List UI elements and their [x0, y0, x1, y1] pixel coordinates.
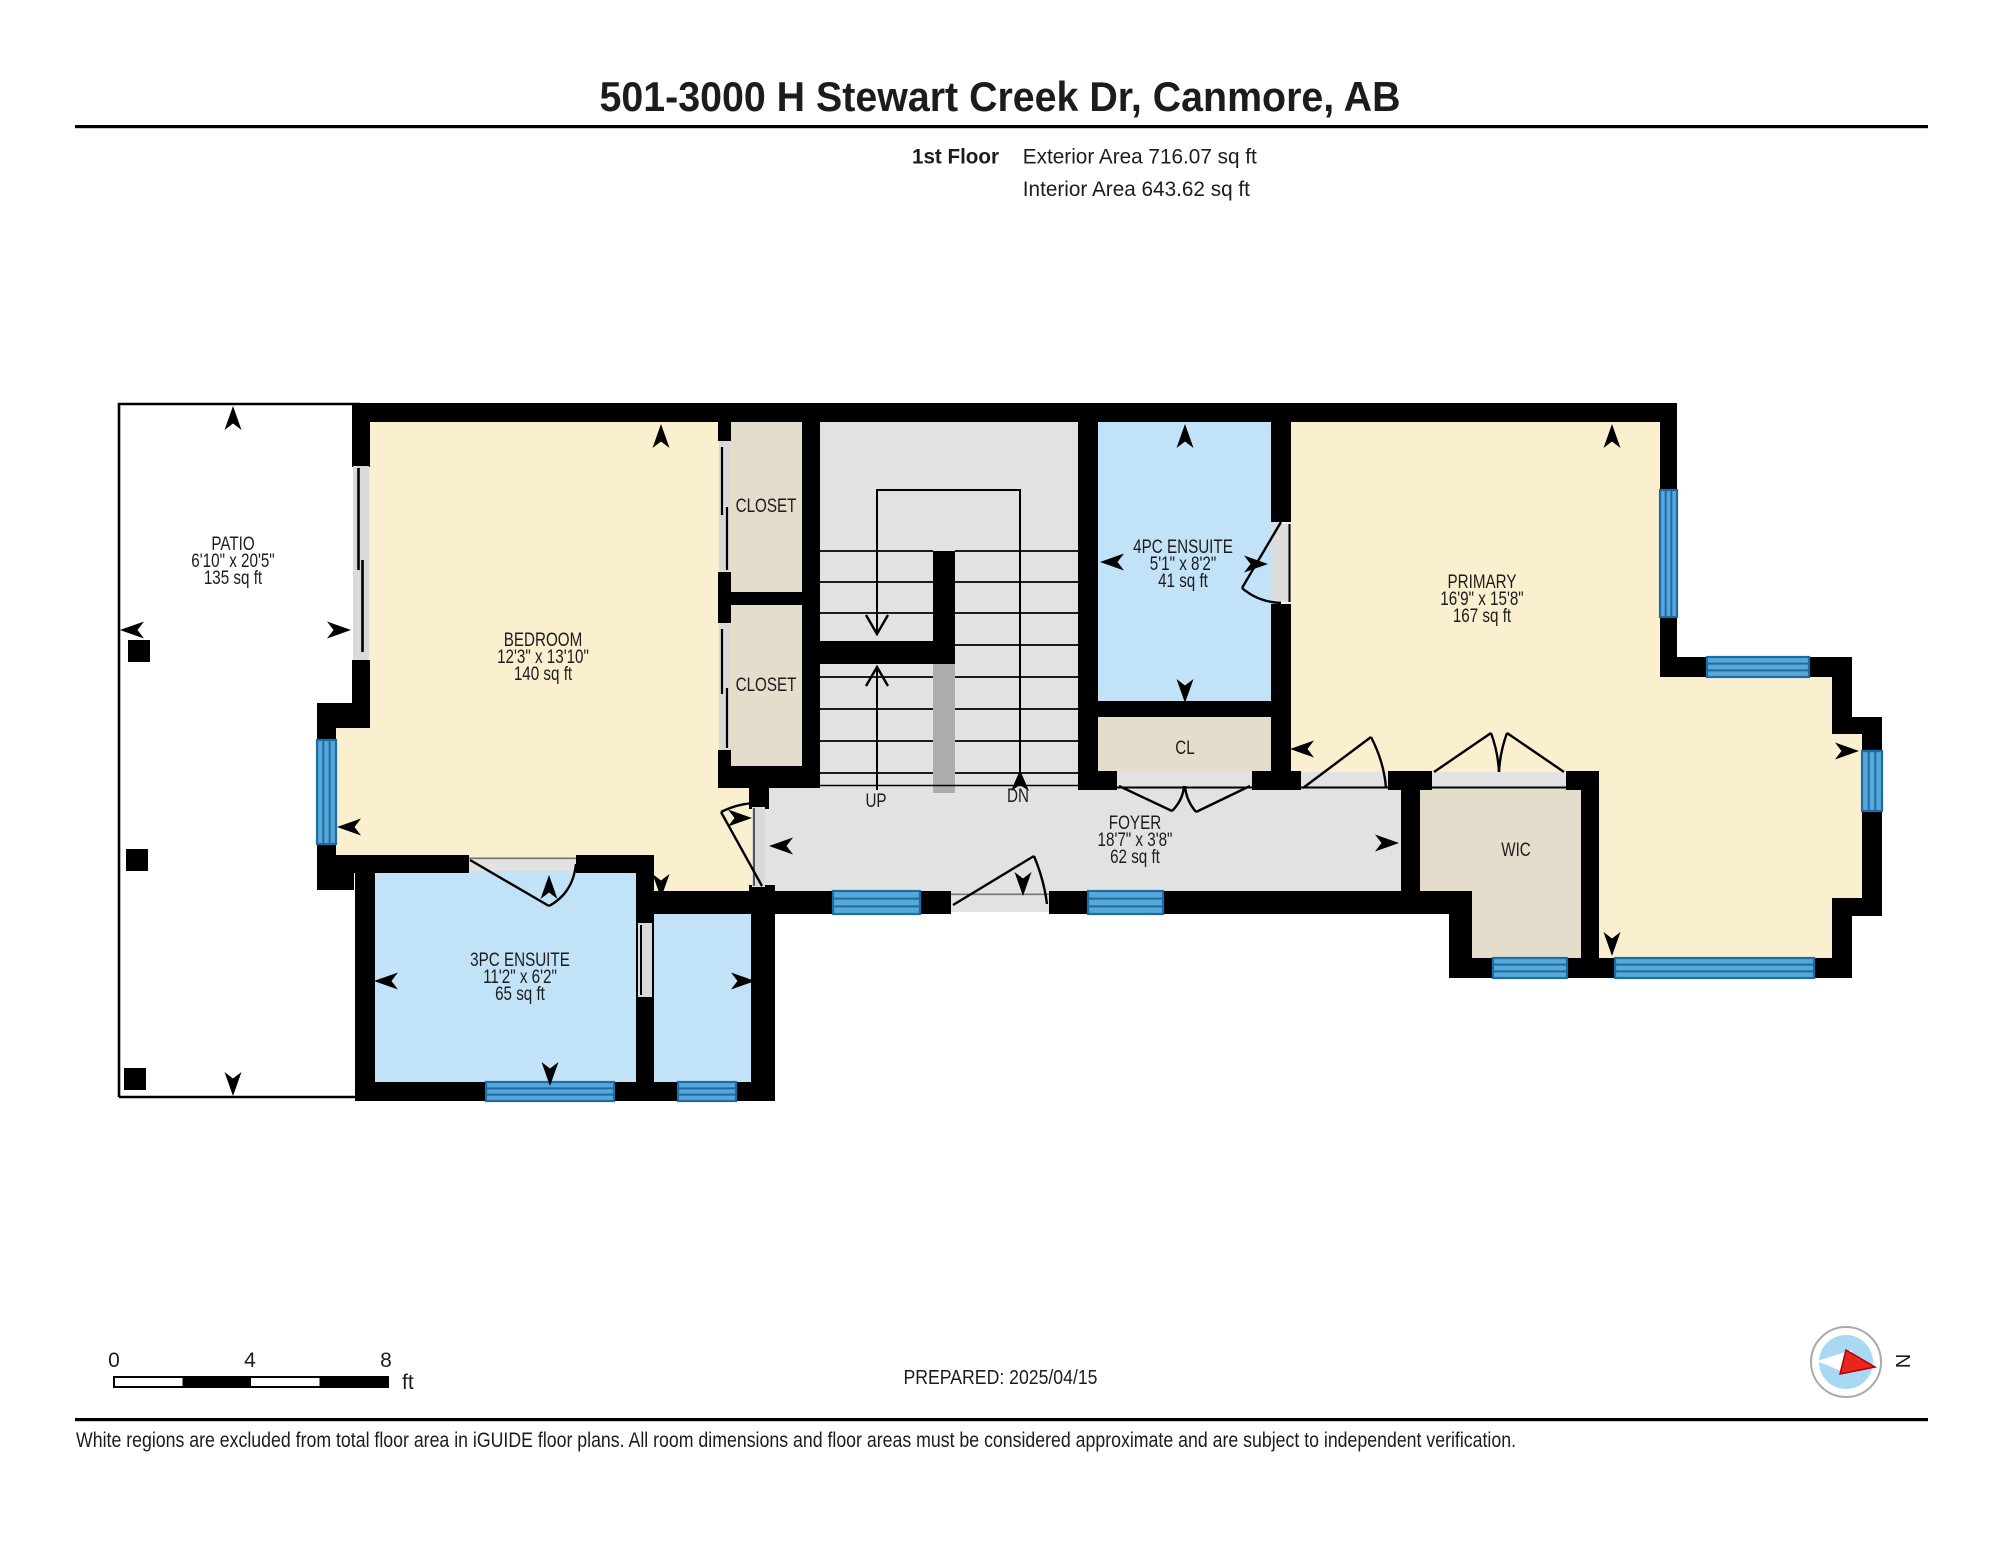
- svg-text:CLOSET: CLOSET: [736, 675, 797, 696]
- svg-text:CLOSET: CLOSET: [736, 496, 797, 517]
- svg-text:62 sq ft: 62 sq ft: [1110, 847, 1160, 868]
- svg-text:White regions are excluded fro: White regions are excluded from total fl…: [76, 1429, 1516, 1452]
- svg-text:UP: UP: [865, 791, 886, 812]
- svg-text:65 sq ft: 65 sq ft: [495, 984, 545, 1005]
- svg-text:140 sq ft: 140 sq ft: [514, 664, 573, 685]
- svg-text:501-3000 H Stewart Creek Dr, C: 501-3000 H Stewart Creek Dr, Canmore, AB: [600, 73, 1401, 120]
- svg-text:DN: DN: [1007, 786, 1029, 807]
- svg-text:N: N: [1891, 1354, 1913, 1368]
- svg-text:ft: ft: [402, 1371, 414, 1394]
- svg-text:WIC: WIC: [1501, 840, 1531, 861]
- svg-text:4: 4: [244, 1349, 256, 1372]
- svg-text:41 sq ft: 41 sq ft: [1158, 571, 1208, 592]
- svg-text:167 sq ft: 167 sq ft: [1453, 606, 1512, 627]
- svg-text:PREPARED: 2025/04/15: PREPARED: 2025/04/15: [904, 1367, 1098, 1389]
- svg-text:1st Floor: 1st Floor: [912, 145, 999, 168]
- svg-text:Interior Area 643.62 sq ft: Interior Area 643.62 sq ft: [1023, 178, 1250, 201]
- svg-text:135 sq ft: 135 sq ft: [204, 568, 263, 589]
- svg-text:0: 0: [108, 1349, 120, 1372]
- svg-text:8: 8: [380, 1349, 392, 1372]
- svg-text:Exterior Area 716.07 sq ft: Exterior Area 716.07 sq ft: [1023, 145, 1257, 168]
- svg-text:CL: CL: [1175, 738, 1194, 759]
